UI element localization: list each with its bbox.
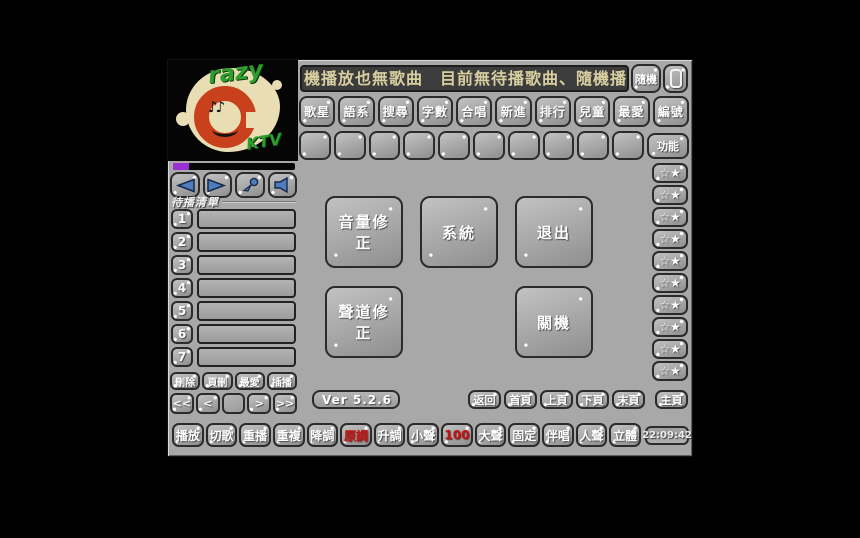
quick-slot-button[interactable] xyxy=(473,131,505,160)
function-button[interactable]: 功能 xyxy=(647,133,689,159)
playlist-slot-number[interactable]: 6 xyxy=(171,324,193,344)
playlist-pager: << < > >> xyxy=(170,393,297,414)
playlist-action-row: 刪除 頁刪 最愛 插播 xyxy=(170,372,297,390)
pager-prev-button[interactable]: < xyxy=(196,393,220,414)
transport-row: 播放 切歌 重播 重複 降調 原調 升調 小聲 100 大聲 固定 伴唱 人聲 … xyxy=(172,423,641,447)
system-label: 系統 xyxy=(442,222,476,243)
microphone-icon xyxy=(240,177,260,193)
pager-blank-button xyxy=(222,393,246,414)
page-delete-button[interactable]: 頁刪 xyxy=(202,372,232,390)
shutdown-button[interactable]: 關機 xyxy=(515,286,593,358)
repeat-button[interactable]: 重複 xyxy=(273,423,305,447)
now-playing-marquee: 機播放也無歌曲 目前無待播歌曲、隨機播放也無歌 xyxy=(300,65,629,92)
quick-slot-row: 功能 xyxy=(299,131,689,160)
favorite-star-button[interactable]: ☆★ xyxy=(652,207,688,227)
category-favorites-button[interactable]: 最愛 xyxy=(613,96,649,127)
playlist-song-field[interactable] xyxy=(197,324,296,344)
exit-button[interactable]: 退出 xyxy=(515,196,593,268)
category-newsongs-button[interactable]: 新進 xyxy=(495,96,531,127)
category-ranking-button[interactable]: 排行 xyxy=(535,96,571,127)
category-wordcount-button[interactable]: 字數 xyxy=(417,96,453,127)
playlist-slot-number[interactable]: 3 xyxy=(171,255,193,275)
pause-button[interactable] xyxy=(663,64,688,93)
category-songnumber-button[interactable]: 編號 xyxy=(653,96,689,127)
ktv-main-window: ♪♪ razy KTV 機播放也無歌曲 目前無待播歌曲、隨機播放也無歌 隨機 歌… xyxy=(168,60,692,456)
quick-slot-button[interactable] xyxy=(577,131,609,160)
volume-correction-button[interactable]: 音量修正 xyxy=(325,196,403,268)
exit-label: 退出 xyxy=(537,222,571,243)
playlist-song-field[interactable] xyxy=(197,232,296,252)
playlist-slot-number[interactable]: 4 xyxy=(171,278,193,298)
playlist-slot-number[interactable]: 2 xyxy=(171,232,193,252)
quick-slot-button[interactable] xyxy=(369,131,401,160)
quick-slot-button[interactable] xyxy=(438,131,470,160)
volume-level-button[interactable]: 100 xyxy=(441,423,473,447)
playlist-header: 待播清單 xyxy=(171,194,296,210)
playlist-slot-number[interactable]: 1 xyxy=(171,209,193,229)
quick-slot-button[interactable] xyxy=(299,131,331,160)
cut-song-button[interactable]: 切歌 xyxy=(206,423,238,447)
progress-bar xyxy=(173,163,295,170)
pager-fast-next-button[interactable]: >> xyxy=(273,393,297,414)
favorite-star-button[interactable]: ☆★ xyxy=(652,339,688,359)
key-down-button[interactable]: 降調 xyxy=(307,423,339,447)
stereo-button[interactable]: 立體 xyxy=(609,423,641,447)
favorite-star-button[interactable]: ☆★ xyxy=(652,185,688,205)
playlist-song-field[interactable] xyxy=(197,301,296,321)
quick-slot-button[interactable] xyxy=(334,131,366,160)
category-singer-button[interactable]: 歌星 xyxy=(299,96,335,127)
playlist-row: 3 xyxy=(171,255,296,275)
playlist-song-field[interactable] xyxy=(197,347,296,367)
random-play-button[interactable]: 隨機 xyxy=(631,64,661,93)
logo-c-gap xyxy=(246,112,262,128)
home-page-button[interactable]: 主頁 xyxy=(655,390,688,409)
quick-slot-button[interactable] xyxy=(543,131,575,160)
favorite-star-button[interactable]: ☆★ xyxy=(652,295,688,315)
playlist-song-field[interactable] xyxy=(197,278,296,298)
back-button[interactable]: 返回 xyxy=(468,390,501,409)
favorite-star-button[interactable]: ☆★ xyxy=(652,251,688,271)
last-page-button[interactable]: 末頁 xyxy=(612,390,645,409)
pager-fast-prev-button[interactable]: << xyxy=(170,393,194,414)
original-key-button[interactable]: 原調 xyxy=(340,423,372,447)
quick-slot-button[interactable] xyxy=(403,131,435,160)
playlist-slot-number[interactable]: 7 xyxy=(171,347,193,367)
replay-button[interactable]: 重播 xyxy=(239,423,271,447)
playlist-row: 2 xyxy=(171,232,296,252)
category-children-button[interactable]: 兒童 xyxy=(574,96,610,127)
category-search-button[interactable]: 搜尋 xyxy=(378,96,414,127)
key-up-button[interactable]: 升調 xyxy=(374,423,406,447)
channel-correction-button[interactable]: 聲道修正 xyxy=(325,286,403,358)
previous-icon xyxy=(174,178,196,193)
pause-icon xyxy=(670,69,682,88)
vocal-button[interactable]: 人聲 xyxy=(576,423,608,447)
playlist: 1 2 3 4 5 6 7 xyxy=(171,209,296,370)
favorite-star-button[interactable]: ☆★ xyxy=(652,317,688,337)
music-notes-icon: ♪♪ xyxy=(208,98,248,116)
volume-up-button[interactable]: 大聲 xyxy=(475,423,507,447)
next-page-button[interactable]: 下頁 xyxy=(576,390,609,409)
logo-panel: ♪♪ razy KTV xyxy=(168,60,298,161)
clock: 22:09:42 xyxy=(645,426,689,445)
prev-page-button[interactable]: 上頁 xyxy=(540,390,573,409)
category-button-row: 歌星 語系 搜尋 字數 合唱 新進 排行 兒童 最愛 編號 xyxy=(299,96,689,127)
pager-next-button[interactable]: > xyxy=(247,393,271,414)
favorite-star-button[interactable]: ☆★ xyxy=(652,361,688,381)
playlist-song-field[interactable] xyxy=(197,209,296,229)
category-language-button[interactable]: 語系 xyxy=(338,96,374,127)
favorite-star-button[interactable]: ☆★ xyxy=(652,273,688,293)
playlist-row: 1 xyxy=(171,209,296,229)
favorite-star-column: ☆★ ☆★ ☆★ ☆★ ☆★ ☆★ ☆★ ☆★ ☆★ ☆★ xyxy=(652,163,688,381)
favorite-button[interactable]: 最愛 xyxy=(235,372,265,390)
channel-correction-label: 聲道修正 xyxy=(331,301,397,343)
playlist-row: 5 xyxy=(171,301,296,321)
favorite-star-button[interactable]: ☆★ xyxy=(652,163,688,183)
volume-down-button[interactable]: 小聲 xyxy=(407,423,439,447)
playlist-row: 4 xyxy=(171,278,296,298)
accompaniment-button[interactable]: 伴唱 xyxy=(542,423,574,447)
progress-fill xyxy=(173,163,189,170)
favorite-star-button[interactable]: ☆★ xyxy=(652,229,688,249)
shutdown-label: 關機 xyxy=(537,312,571,333)
play-song-button[interactable]: 播放 xyxy=(172,423,204,447)
insert-song-button[interactable]: 插播 xyxy=(267,372,297,390)
logo-text-ktv: KTV xyxy=(245,129,283,153)
volume-correction-label: 音量修正 xyxy=(331,211,397,253)
fixed-button[interactable]: 固定 xyxy=(508,423,540,447)
first-page-button[interactable]: 首頁 xyxy=(504,390,537,409)
playlist-header-line xyxy=(222,201,296,203)
playlist-slot-number[interactable]: 5 xyxy=(171,301,193,321)
system-button[interactable]: 系統 xyxy=(420,196,498,268)
marquee-text: 機播放也無歌曲 目前無待播歌曲、隨機播放也無歌 xyxy=(304,69,629,88)
quick-slot-button[interactable] xyxy=(508,131,540,160)
play-icon xyxy=(206,178,228,193)
playlist-row: 6 xyxy=(171,324,296,344)
logo-smile xyxy=(212,122,238,137)
quick-slot-button[interactable] xyxy=(612,131,644,160)
version-label: Ver 5.2.6 xyxy=(312,390,400,409)
playlist-song-field[interactable] xyxy=(197,255,296,275)
delete-button[interactable]: 刪除 xyxy=(170,372,200,390)
category-chorus-button[interactable]: 合唱 xyxy=(456,96,492,127)
playlist-row: 7 xyxy=(171,347,296,367)
playlist-title: 待播清單 xyxy=(171,194,219,210)
speaker-icon xyxy=(273,177,291,193)
